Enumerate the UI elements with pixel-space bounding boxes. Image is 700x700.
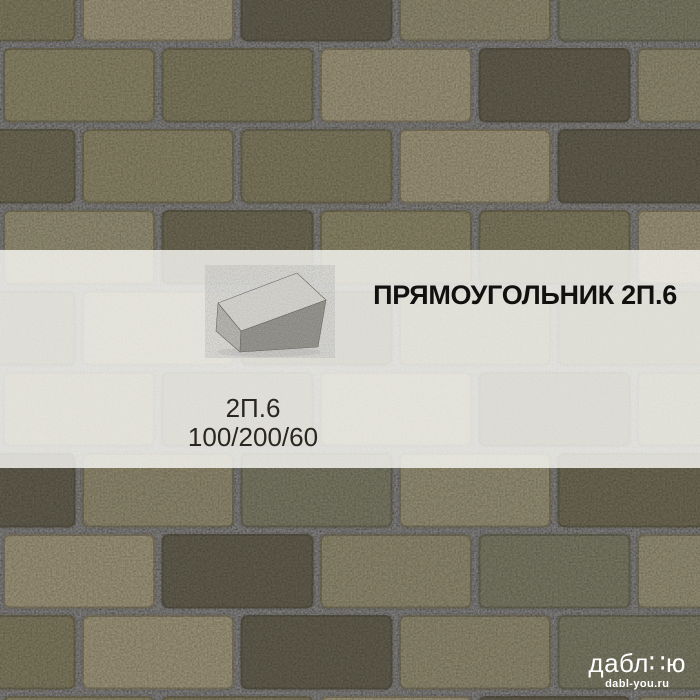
paving-brick xyxy=(82,0,234,42)
product-dimensions: 100/200/60 xyxy=(188,423,318,452)
paving-brick xyxy=(637,48,700,123)
paving-brick xyxy=(241,615,393,690)
paving-brick xyxy=(82,129,234,204)
paving-brick xyxy=(3,696,155,700)
brand-logo: дабл∷ю dabl-you.ru xyxy=(588,650,686,690)
paving-brick xyxy=(162,534,314,609)
paving-brick xyxy=(399,0,551,42)
paving-brick xyxy=(637,534,700,609)
paving-brick xyxy=(162,48,314,123)
paving-brick xyxy=(241,129,393,204)
paving-brick xyxy=(479,696,631,700)
brand-website: dabl-you.ru xyxy=(588,678,686,690)
paving-brick xyxy=(82,615,234,690)
product-code: 2П.6 xyxy=(188,394,318,423)
paving-brick xyxy=(320,48,472,123)
paving-brick xyxy=(479,48,631,123)
paving-brick xyxy=(0,0,76,42)
product-specs: 2П.6 100/200/60 xyxy=(188,394,318,452)
paving-brick xyxy=(0,129,76,204)
paving-brick xyxy=(241,0,393,42)
paving-brick xyxy=(637,696,700,700)
paving-brick xyxy=(0,615,76,690)
product-banner: ПРЯМОУГОЛЬНИК 2П.6 2П.6 100/200/60 дабл∷… xyxy=(0,0,700,700)
paving-brick xyxy=(399,615,551,690)
brand-logo-text: дабл∷ю xyxy=(588,650,686,677)
paving-brick xyxy=(3,48,155,123)
paving-brick xyxy=(558,0,700,42)
paving-brick xyxy=(558,129,700,204)
paving-brick xyxy=(320,534,472,609)
paving-brick-image xyxy=(205,258,335,358)
paving-brick xyxy=(3,534,155,609)
paving-brick xyxy=(162,696,314,700)
product-title: ПРЯМОУГОЛЬНИК 2П.6 xyxy=(373,280,677,311)
paving-brick xyxy=(479,534,631,609)
paving-brick xyxy=(399,129,551,204)
paving-brick xyxy=(320,696,472,700)
